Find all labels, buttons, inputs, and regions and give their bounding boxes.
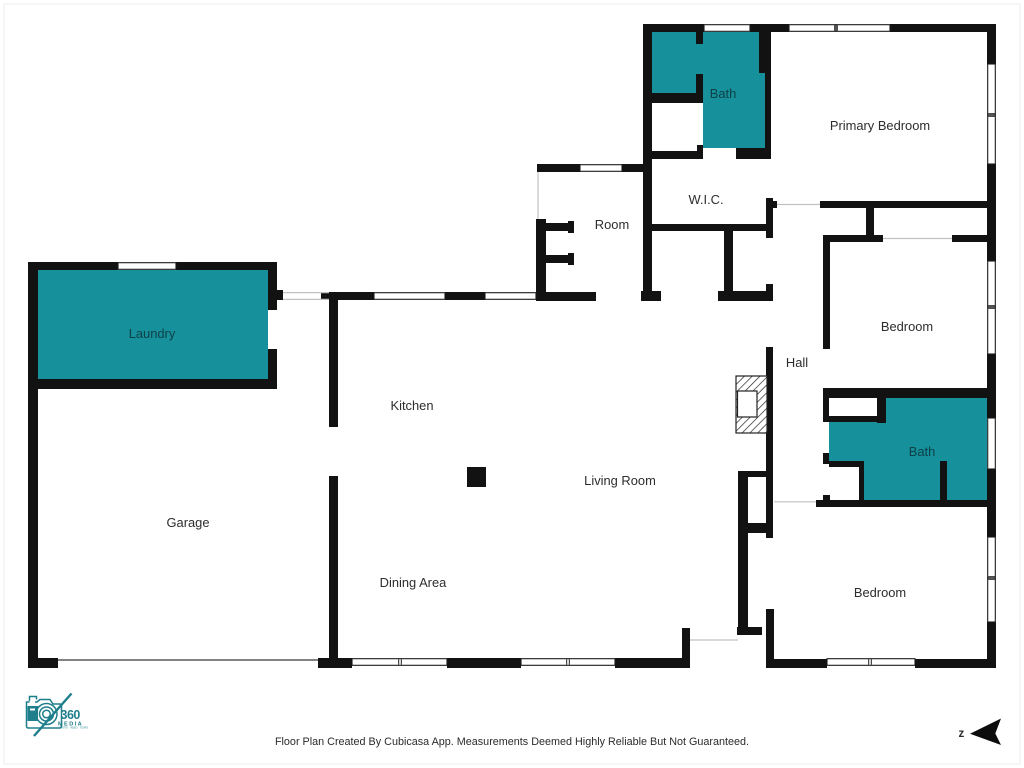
svg-text:Bath: Bath xyxy=(909,444,936,459)
svg-text:Living Room: Living Room xyxy=(584,473,656,488)
svg-text:Laundry: Laundry xyxy=(129,326,176,341)
svg-text:Kitchen: Kitchen xyxy=(391,398,434,413)
svg-text:Floor Plan Created By Cubicasa: Floor Plan Created By Cubicasa App. Meas… xyxy=(275,736,749,748)
svg-text:W.I.C.: W.I.C. xyxy=(688,192,723,207)
svg-text:Hall: Hall xyxy=(786,355,808,370)
svg-text:Bedroom: Bedroom xyxy=(854,585,906,600)
svg-text:Primary Bedroom: Primary Bedroom xyxy=(830,118,930,133)
svg-text:Room: Room xyxy=(595,217,629,232)
svg-text:Garage: Garage xyxy=(167,515,210,530)
svg-text:Dining Area: Dining Area xyxy=(380,575,447,590)
svg-text:PHOTO · VIDEO · TOURS: PHOTO · VIDEO · TOURS xyxy=(60,726,89,729)
svg-text:z: z xyxy=(959,728,965,740)
svg-text:360: 360 xyxy=(61,708,81,722)
svg-text:Bath: Bath xyxy=(710,86,737,101)
svg-text:Bedroom: Bedroom xyxy=(881,319,933,334)
